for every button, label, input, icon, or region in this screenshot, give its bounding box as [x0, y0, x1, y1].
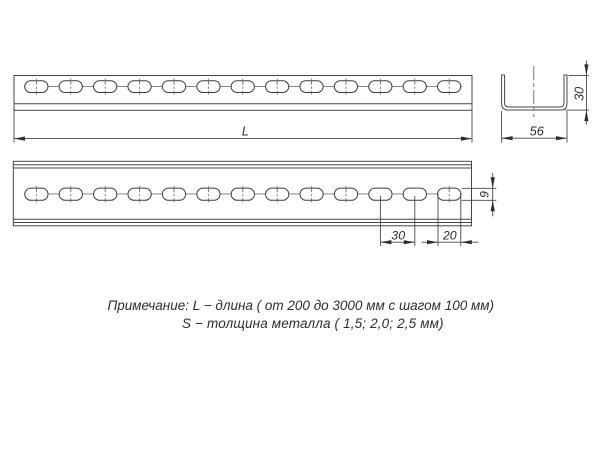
svg-text:Примечание: L − длина ( от 200: Примечание: L − длина ( от 200 до 3000 м… — [108, 298, 494, 313]
svg-text:30: 30 — [391, 228, 405, 242]
svg-text:9: 9 — [477, 191, 491, 198]
svg-text:L: L — [242, 125, 249, 139]
svg-text:56: 56 — [530, 123, 545, 138]
svg-text:S − толщина металла ( 1,5; 2,0: S − толщина металла ( 1,5; 2,0; 2,5 мм) — [182, 316, 444, 331]
svg-text:20: 20 — [442, 228, 457, 242]
svg-text:30: 30 — [573, 87, 587, 101]
